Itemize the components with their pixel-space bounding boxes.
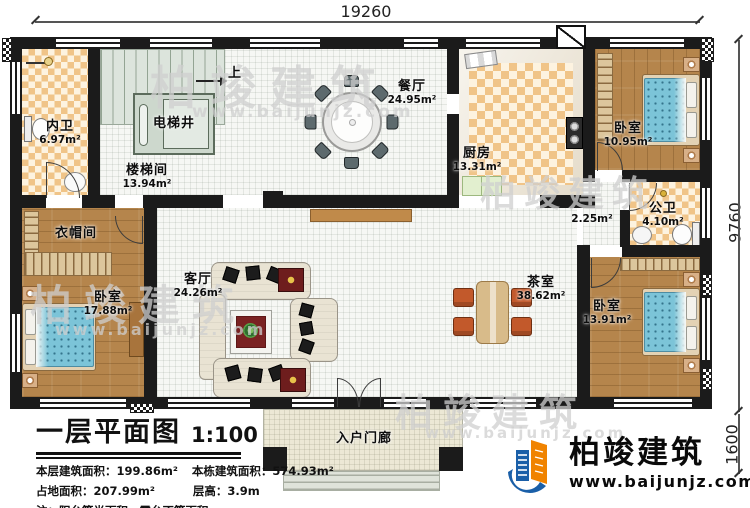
room-label-cloakroom: 衣帽间 bbox=[41, 227, 111, 242]
company-name: 柏竣建筑 bbox=[569, 436, 750, 472]
stats-line-2: 占地面积：207.99m²层高：3.9m bbox=[36, 483, 284, 499]
window bbox=[700, 78, 712, 140]
room-name: 内卫 bbox=[30, 120, 90, 135]
room-label-kitchen: 厨房 13.31m² bbox=[442, 147, 512, 173]
wall bbox=[144, 208, 157, 397]
chair bbox=[453, 288, 474, 307]
cushion bbox=[245, 265, 260, 280]
window bbox=[700, 188, 712, 238]
room-label-inner-bath: 内卫 6.97m² bbox=[30, 120, 90, 146]
room-label-living: 客厅 24.26m² bbox=[163, 273, 233, 299]
room-label-bedroom-bl: 卧室 17.88m² bbox=[73, 291, 143, 317]
lazy-susan bbox=[349, 119, 356, 126]
nightstand bbox=[683, 358, 700, 373]
wall bbox=[622, 245, 712, 257]
bed-sheet bbox=[674, 78, 686, 142]
title-rule bbox=[36, 452, 241, 455]
window bbox=[466, 37, 540, 49]
pillow bbox=[686, 82, 697, 108]
room-area: 13.31m² bbox=[442, 162, 512, 174]
window bbox=[384, 397, 426, 409]
wardrobe bbox=[24, 252, 112, 276]
dim-tick bbox=[31, 15, 40, 24]
window bbox=[10, 62, 22, 114]
room-name: 楼梯间 bbox=[107, 164, 187, 179]
stat-label: 占地面积： bbox=[36, 484, 94, 498]
window bbox=[10, 314, 22, 372]
chair bbox=[344, 75, 359, 87]
sink bbox=[632, 226, 652, 244]
tv-cabinet bbox=[310, 209, 412, 222]
plant-icon bbox=[243, 323, 258, 338]
pillow bbox=[25, 339, 36, 365]
nightstand bbox=[683, 148, 700, 163]
dim-line bbox=[35, 21, 700, 23]
window bbox=[150, 37, 212, 49]
pillow bbox=[686, 296, 697, 320]
stat-label: 层高： bbox=[193, 484, 228, 498]
nightstand bbox=[22, 286, 38, 301]
room-area: 24.95m² bbox=[377, 95, 447, 107]
stat-value: 574.93m² bbox=[272, 464, 333, 478]
kitchen-table bbox=[462, 176, 502, 196]
room-name: 入户门廊 bbox=[324, 432, 404, 447]
room-area: 13.94m² bbox=[107, 179, 187, 191]
window bbox=[610, 37, 684, 49]
room-name: 公卫 bbox=[628, 202, 698, 217]
section-marker bbox=[702, 274, 712, 296]
room-area: 2.25m² bbox=[566, 214, 618, 226]
window bbox=[292, 397, 334, 409]
room-name: 卧室 bbox=[73, 291, 143, 306]
wall bbox=[447, 49, 459, 94]
wall bbox=[10, 195, 46, 208]
chair bbox=[305, 115, 317, 130]
chair bbox=[344, 157, 359, 169]
room-label-bedroom-tr: 卧室 10.95m² bbox=[593, 122, 663, 148]
room-label-porch: 入户门廊 bbox=[324, 432, 404, 447]
wardrobe bbox=[620, 258, 700, 271]
room-area: 13.91m² bbox=[572, 315, 642, 327]
stat-label: 本栋建筑面积： bbox=[192, 464, 273, 478]
room-label-dining: 餐厅 24.95m² bbox=[377, 80, 447, 106]
stat-value: 199.86m² bbox=[117, 464, 178, 478]
room-area: 6.97m² bbox=[30, 135, 90, 147]
title-block: 一层平面图 1:100 本层建筑面积：199.86m²本栋建筑面积：574.93… bbox=[36, 410, 284, 508]
dim-top-label: 19260 bbox=[338, 2, 394, 21]
side-table bbox=[280, 368, 306, 392]
nightstand bbox=[683, 272, 700, 287]
window bbox=[700, 298, 712, 360]
nightstand bbox=[683, 57, 700, 72]
flue-box bbox=[556, 25, 586, 49]
pillow bbox=[686, 112, 697, 138]
window bbox=[470, 397, 536, 409]
company-url: www.baijunjz.com bbox=[569, 472, 750, 491]
wall bbox=[263, 191, 283, 208]
room-name: 电梯井 bbox=[139, 117, 209, 132]
dim-line bbox=[738, 40, 740, 412]
window bbox=[168, 397, 250, 409]
room-label-bedroom-br: 卧室 13.91m² bbox=[572, 300, 642, 326]
stairs-up-arrow bbox=[196, 80, 222, 82]
company-logo: 柏竣建筑 www.baijunjz.com bbox=[504, 436, 750, 496]
wall bbox=[82, 195, 115, 208]
pillow bbox=[25, 309, 36, 335]
room-area: 4.10m² bbox=[628, 217, 698, 229]
faucet-icon bbox=[44, 57, 53, 66]
wall bbox=[622, 170, 712, 182]
room-area: 10.95m² bbox=[593, 137, 663, 149]
section-marker bbox=[702, 368, 712, 390]
wall bbox=[540, 195, 595, 208]
stats-line-1: 本层建筑面积：199.86m²本栋建筑面积：574.93m² bbox=[36, 463, 284, 479]
room-name: 茶室 bbox=[506, 276, 576, 291]
room-area: 17.88m² bbox=[73, 306, 143, 318]
room-label-stair-hall: 楼梯间 13.94m² bbox=[107, 164, 187, 190]
direction-label: 上 bbox=[224, 67, 246, 82]
title-note: 注：阳台算半面积，露台不算面积 bbox=[36, 503, 284, 508]
room-area: 24.26m² bbox=[163, 288, 233, 300]
porch-pillar bbox=[439, 447, 463, 471]
room-label-tea-room: 茶室 38.62m² bbox=[506, 276, 576, 302]
nightstand bbox=[22, 373, 38, 388]
drawing-scale: 1:100 bbox=[191, 423, 258, 449]
window bbox=[40, 397, 126, 409]
room-name: 餐厅 bbox=[377, 80, 447, 95]
room-name: 卧室 bbox=[593, 122, 663, 137]
page-title: 一层平面图 bbox=[36, 410, 181, 449]
cushion bbox=[299, 321, 314, 336]
window bbox=[56, 37, 120, 49]
logo-text: 柏竣建筑 www.baijunjz.com bbox=[569, 436, 750, 491]
bed-sheet bbox=[674, 292, 686, 352]
room-name: 衣帽间 bbox=[41, 227, 111, 242]
stat-label: 本层建筑面积： bbox=[36, 464, 117, 478]
wall bbox=[283, 195, 447, 208]
title-rule bbox=[36, 457, 241, 459]
bed-sheet bbox=[36, 307, 48, 367]
stove bbox=[566, 117, 583, 149]
room-label-public-bath: 公卫 4.10m² bbox=[628, 202, 698, 228]
dim-tick bbox=[695, 15, 704, 24]
wall bbox=[583, 170, 595, 182]
cushion bbox=[247, 367, 263, 383]
stat-value: 207.99m² bbox=[94, 484, 155, 498]
stat-value: 3.9m bbox=[227, 484, 259, 498]
chair bbox=[511, 317, 532, 336]
chair bbox=[387, 115, 399, 130]
room-name: 厨房 bbox=[442, 147, 512, 162]
window bbox=[404, 37, 438, 49]
corridor-area-label: 2.25m² bbox=[566, 214, 618, 226]
pillow bbox=[686, 326, 697, 350]
chair bbox=[453, 317, 474, 336]
stairs-up-label: 上 bbox=[224, 67, 246, 82]
window bbox=[614, 397, 692, 409]
room-name: 客厅 bbox=[163, 273, 233, 288]
wall bbox=[143, 195, 223, 208]
title-row: 一层平面图 1:100 bbox=[36, 410, 284, 449]
logo-building-icon bbox=[504, 436, 560, 496]
room-name: 卧室 bbox=[572, 300, 642, 315]
dim-right-label: 9760 bbox=[726, 193, 745, 253]
room-label-elevator: 电梯井 bbox=[139, 117, 209, 132]
window bbox=[250, 37, 320, 49]
section-marker bbox=[701, 38, 714, 62]
room-area: 38.62m² bbox=[506, 291, 576, 303]
side-table bbox=[278, 268, 304, 292]
floor-drain-icon bbox=[660, 190, 667, 197]
wall bbox=[583, 49, 595, 170]
section-marker bbox=[2, 38, 12, 62]
tea-table bbox=[476, 281, 509, 344]
floorplan-sheet: 19260 9760 1600 bbox=[0, 0, 750, 508]
